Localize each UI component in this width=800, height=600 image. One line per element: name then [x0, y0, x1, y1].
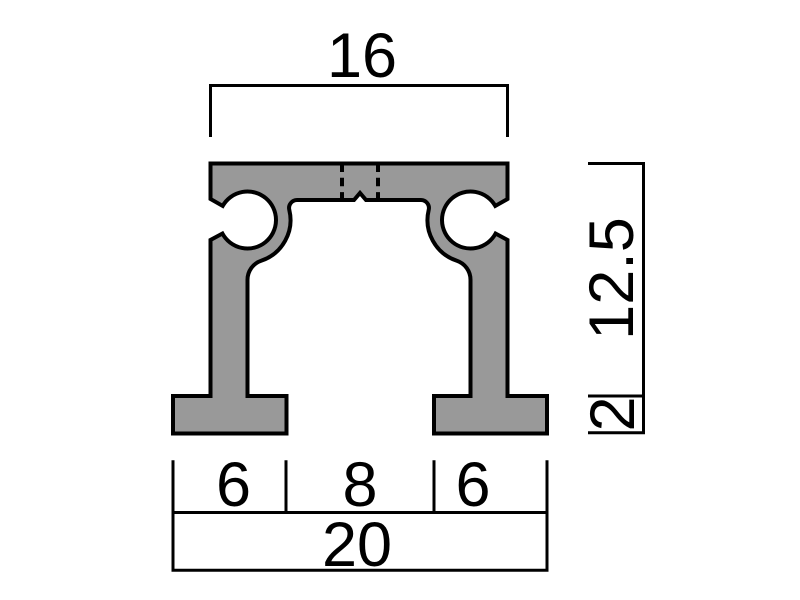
svg-text:20: 20: [322, 510, 392, 580]
svg-text:6: 6: [455, 450, 490, 520]
svg-text:16: 16: [327, 21, 397, 91]
svg-text:2: 2: [578, 396, 648, 431]
svg-text:12.5: 12.5: [577, 217, 647, 340]
svg-text:6: 6: [216, 450, 251, 520]
